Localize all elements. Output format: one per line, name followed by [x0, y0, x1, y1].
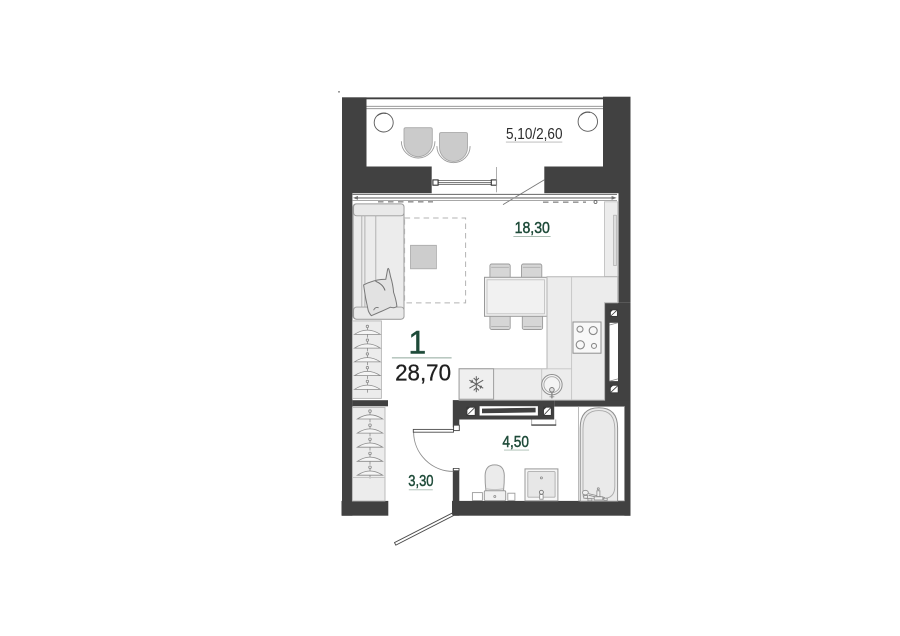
svg-text:5,10/2,60: 5,10/2,60: [506, 126, 563, 143]
svg-text:3,30: 3,30: [408, 473, 434, 490]
svg-text:1: 1: [408, 324, 426, 360]
svg-text:28,70: 28,70: [395, 359, 451, 385]
svg-text:18,30: 18,30: [515, 220, 551, 237]
svg-text:4,50: 4,50: [502, 434, 529, 451]
